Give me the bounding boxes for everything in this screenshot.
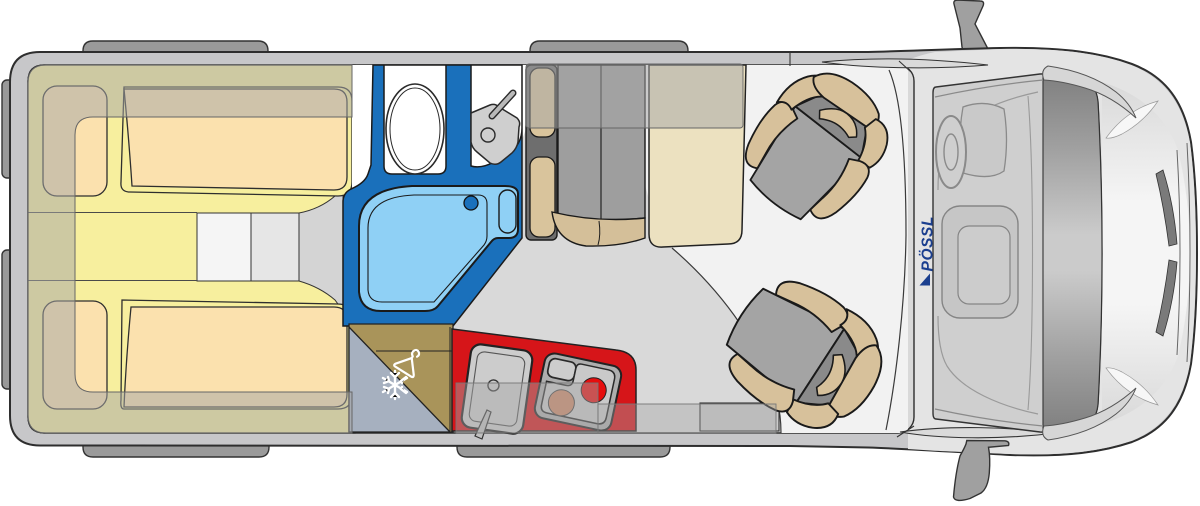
svg-text:PÖSSL: PÖSSL: [920, 216, 937, 272]
